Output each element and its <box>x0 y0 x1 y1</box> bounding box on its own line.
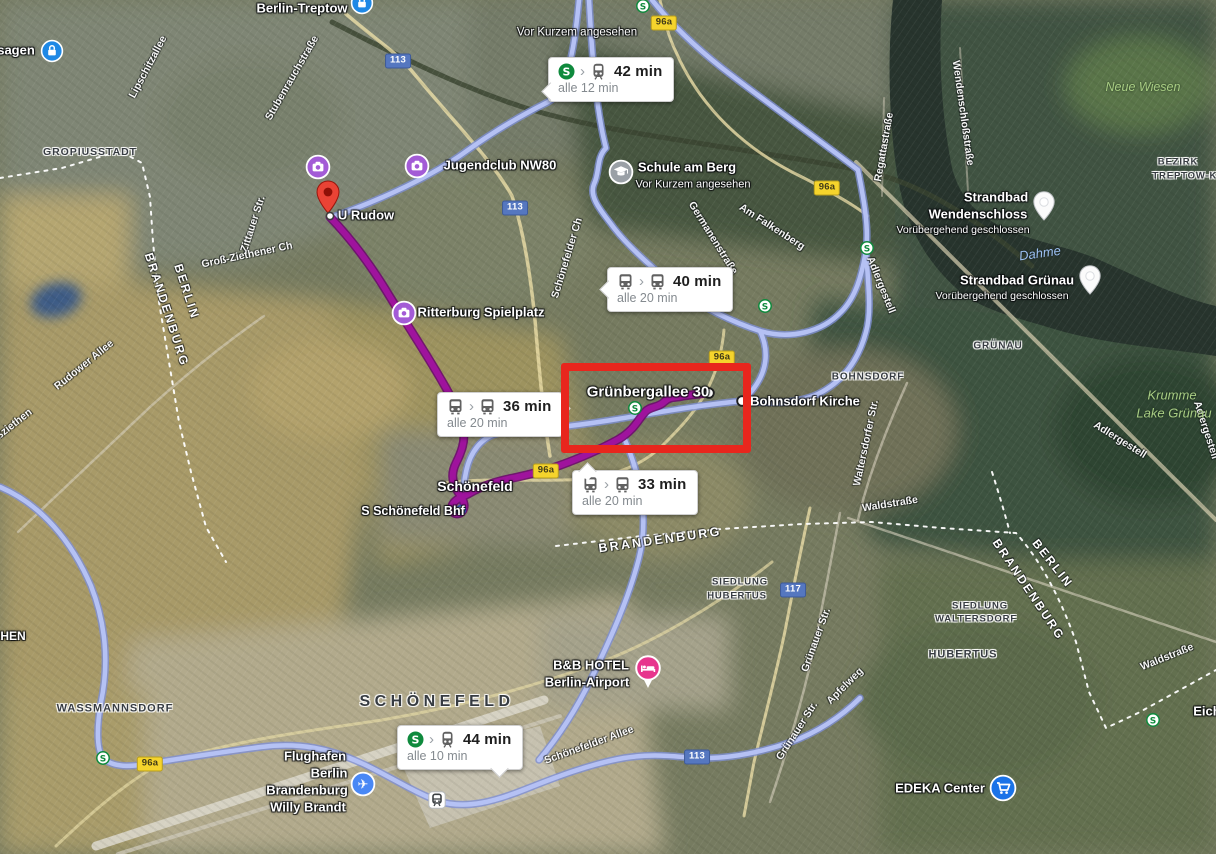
svg-text:S: S <box>864 244 870 254</box>
street-label: Wendenschloßstraße <box>950 60 977 167</box>
camera-icon[interactable] <box>305 154 331 180</box>
poi-label[interactable]: Brandenburg <box>266 784 348 799</box>
route-shield-113: 113 <box>684 750 710 765</box>
street-label: Lipschitzallee <box>127 34 170 100</box>
dest-label[interactable]: Grünbergallee 30 <box>587 383 710 400</box>
camera-icon[interactable] <box>404 153 430 179</box>
school-icon[interactable] <box>608 159 634 185</box>
state-label: BERLIN <box>1029 537 1075 591</box>
svg-text:S: S <box>100 754 106 764</box>
train-icon <box>590 63 607 80</box>
sbahn-icon: S <box>407 731 424 748</box>
poi-label[interactable]: Wendenschloss <box>929 208 1028 223</box>
chevron-icon: › <box>604 480 609 490</box>
poi-label[interactable]: Berlin-Treptow <box>256 2 347 17</box>
svg-text:S: S <box>563 66 571 79</box>
street-label: Regattastraße <box>872 111 896 182</box>
svg-text:S: S <box>412 734 420 747</box>
state-label: BRANDENBURG <box>598 524 723 556</box>
district-label: WALTERSDORF <box>935 615 1017 626</box>
transit-time: 40 min <box>673 273 721 290</box>
svg-text:✈: ✈ <box>358 778 369 793</box>
bus-icon <box>614 476 631 493</box>
chevron-icon: › <box>429 735 434 745</box>
street-label: Rudower Allee <box>52 337 116 392</box>
poi-label[interactable]: Flughafen <box>284 750 346 765</box>
nature-label: Neue Wiesen <box>1106 80 1181 94</box>
transit-time: 33 min <box>638 476 686 493</box>
district-label: SIEDLUNG <box>712 578 768 589</box>
red-pin-icon[interactable] <box>316 180 340 214</box>
route-shield-117: 117 <box>780 583 806 598</box>
poi-sub-label: Vorübergehend geschlossen <box>896 224 1029 236</box>
chevron-icon: › <box>580 67 585 77</box>
transit-frequency: alle 20 min <box>617 291 721 305</box>
route-shield-113: 113 <box>385 54 411 69</box>
white-pin-icon[interactable] <box>1079 265 1101 295</box>
transit-time-bubble[interactable]: S›44 minalle 10 min <box>397 725 523 770</box>
transit-frequency: alle 20 min <box>447 416 551 430</box>
transit-time-bubble[interactable]: ›40 minalle 20 min <box>607 267 733 312</box>
lock-icon[interactable] <box>40 39 64 63</box>
transit-time-bubble[interactable]: ›36 minalle 20 min <box>437 392 563 437</box>
svg-text:S: S <box>1150 716 1156 726</box>
route-shield-96a: 96a <box>533 464 559 479</box>
transit-time: 42 min <box>614 63 662 80</box>
sbahn-marker-icon[interactable]: S <box>636 0 650 13</box>
poi-sub-label: Vor Kurzem angesehen <box>517 26 637 39</box>
transit-frequency: alle 20 min <box>582 494 686 508</box>
poi-sub-label: Vor Kurzem angesehen <box>636 179 751 192</box>
svg-text:S: S <box>762 302 768 312</box>
route-shield-96a: 96a <box>137 757 163 772</box>
poi-label[interactable]: Eichw <box>1193 705 1216 720</box>
poi-label[interactable]: Willy Brandt <box>270 801 346 816</box>
district-label: GROPIUSSTADT <box>43 146 137 158</box>
street-label: Waltersdorfer Str. <box>851 399 881 487</box>
street-label: Adlergestell <box>1091 419 1148 461</box>
district-label: TREPTOW-KÖPEN <box>1152 172 1216 183</box>
transit-time: 44 min <box>463 731 511 748</box>
sbahn-marker-icon[interactable]: S <box>758 299 772 313</box>
bus-icon <box>649 273 666 290</box>
street-label: Schönefelder Allee <box>543 723 636 767</box>
chevron-icon: › <box>469 402 474 412</box>
bubble-tail <box>541 82 559 100</box>
street-label: Germanenstraße <box>686 199 740 276</box>
hotel-pin-icon[interactable] <box>634 654 662 690</box>
bus-icon <box>479 398 496 415</box>
poi-label[interactable]: EDEKA Center <box>895 782 985 797</box>
poi-label[interactable]: HEN <box>0 630 25 644</box>
bus-icon <box>617 273 634 290</box>
poi-label[interactable]: Schönefeld <box>437 478 512 494</box>
district-label: HUBERTUS <box>707 592 767 603</box>
district-label: SIEDLUNG <box>952 602 1008 613</box>
poi-label[interactable]: Schule am Berg <box>638 161 736 176</box>
train-icon <box>439 731 456 748</box>
sbahn-marker-icon[interactable]: S <box>1146 713 1160 727</box>
nature-label: Lake Grünau <box>1136 407 1211 422</box>
water-label: Dahme <box>1018 244 1062 265</box>
poi-label[interactable]: sagen <box>0 44 35 59</box>
poi-sub-label: Vorübergehend geschlossen <box>935 290 1068 302</box>
district-label: GRÜNAU <box>973 340 1022 352</box>
route-shield-96a: 96a <box>814 181 840 196</box>
camera-icon[interactable] <box>391 300 417 326</box>
street-label: Schönefelder Ch <box>549 216 585 299</box>
transit-time: 36 min <box>503 398 551 415</box>
street-label: Grünauer Str. <box>799 606 833 673</box>
poi-label[interactable]: Strandbad Grünau <box>960 274 1074 289</box>
district-label: BOHNSDORF <box>832 371 905 383</box>
street-label: ßziethen <box>0 406 34 442</box>
poi-label[interactable]: Ritterburg Spielplatz <box>417 306 544 321</box>
white-pin-icon[interactable] <box>1033 191 1055 221</box>
transit-frequency: alle 12 min <box>558 81 662 95</box>
street-label: Am Falkenberg <box>737 201 807 252</box>
district-big-label: SCHÖNEFELD <box>359 693 514 711</box>
street-label: Grünauer Str. <box>774 700 821 763</box>
poi-label[interactable]: Jugendclub NW80 <box>444 159 557 174</box>
street-label: Apfelweg <box>824 665 866 707</box>
poi-label[interactable]: U Rudow <box>338 209 394 224</box>
highlight-rectangle <box>561 363 751 453</box>
poi-label[interactable]: Bohnsdorf Kirche <box>750 395 860 410</box>
train-station-icon[interactable] <box>428 791 446 809</box>
bubble-tail <box>599 280 617 298</box>
transit-stop-dot[interactable] <box>325 211 335 221</box>
district-label: WASSMANNSDORF <box>57 703 174 716</box>
street-label: Waldstraße <box>861 494 918 515</box>
transit-frequency: alle 10 min <box>407 749 511 763</box>
lock-icon[interactable] <box>350 0 374 15</box>
supermarket-icon[interactable] <box>989 774 1017 802</box>
poi-label[interactable]: Strandbad <box>964 191 1028 206</box>
transit-time-bubble[interactable]: ›33 minalle 20 min <box>572 470 698 515</box>
sbahn-marker-icon[interactable]: S <box>96 751 110 765</box>
street-label: Stubenrauchstraße <box>263 34 321 123</box>
street-label: Waldstraße <box>1139 641 1196 673</box>
chevron-icon: › <box>639 277 644 287</box>
district-label: BEZIRK <box>1158 158 1199 169</box>
svg-text:S: S <box>640 2 646 12</box>
route-shield-113: 113 <box>502 201 528 216</box>
poi-label[interactable]: S Schönefeld Bhf <box>361 504 464 518</box>
nature-label: Krumme <box>1147 389 1196 404</box>
poi-label[interactable]: Berlin-Airport <box>545 676 630 691</box>
sbahn-icon: S <box>558 63 575 80</box>
route-shield-96a: 96a <box>651 16 677 31</box>
poi-label[interactable]: Berlin <box>311 767 348 782</box>
street-label: Adlergestell <box>864 255 898 315</box>
poi-label[interactable]: B&B HOTEL <box>553 659 629 674</box>
map-canvas[interactable]: SSS✈SSS96a96a96a96a96a113113113117Berlin… <box>0 0 1216 854</box>
transit-time-bubble[interactable]: S›42 minalle 12 min <box>548 57 674 102</box>
district-label: HUBERTUS <box>928 649 997 662</box>
bus-icon <box>447 398 464 415</box>
sbahn-marker-icon[interactable]: S <box>860 241 874 255</box>
state-label: BRANDENBURG <box>989 537 1067 643</box>
airport-icon[interactable]: ✈ <box>350 771 376 797</box>
